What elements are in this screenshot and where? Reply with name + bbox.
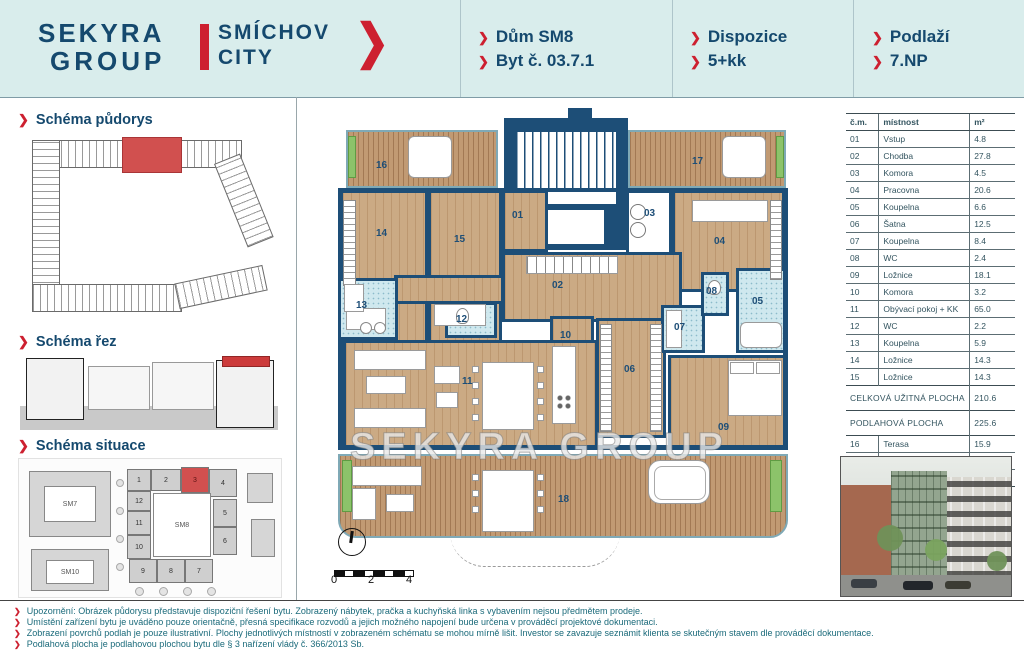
room-label: 01 bbox=[512, 210, 523, 221]
chair bbox=[472, 414, 479, 421]
side-table bbox=[436, 392, 458, 408]
situace-cell: 2 bbox=[151, 469, 181, 491]
room-label: 14 bbox=[376, 228, 387, 239]
room-label: 10 bbox=[560, 330, 571, 341]
dispozice-label: Dispozice bbox=[708, 25, 787, 48]
building-ring-corner bbox=[174, 265, 267, 309]
podlazi-label: Podlaží bbox=[890, 25, 950, 48]
block-misc bbox=[247, 473, 273, 503]
chair bbox=[472, 490, 479, 497]
chair bbox=[537, 382, 544, 389]
podlazi-value: 7.NP bbox=[890, 49, 928, 72]
table-row: 13Koupelna5.9 bbox=[846, 335, 1015, 352]
house-label: Dům SM8 bbox=[496, 25, 573, 48]
logo-chevron-icon: ❯ bbox=[355, 14, 389, 70]
building-green bbox=[891, 471, 947, 581]
room-label: 16 bbox=[376, 160, 387, 171]
north-needle bbox=[349, 531, 354, 543]
chevron-icon: ❯ bbox=[478, 50, 489, 73]
room-label: 02 bbox=[552, 280, 563, 291]
table-row: 14Ložnice14.3 bbox=[846, 352, 1015, 369]
table-row: 07Koupelna8.4 bbox=[846, 233, 1015, 250]
room-label: 04 bbox=[714, 236, 725, 247]
chevron-icon: ❯ bbox=[14, 639, 21, 650]
elevator bbox=[542, 210, 604, 244]
room-label: 11 bbox=[462, 376, 473, 387]
rooms-table-body: 01Vstup4.802Chodba27.803Komora4.504Praco… bbox=[846, 131, 1015, 487]
table-row: 15Ložnice14.3 bbox=[846, 369, 1015, 386]
room-label: 15 bbox=[454, 234, 465, 245]
chevron-icon: ❯ bbox=[18, 438, 29, 454]
terrace-table bbox=[408, 136, 452, 178]
sidebar-divider bbox=[296, 97, 297, 600]
block-misc bbox=[251, 519, 275, 557]
schema-rez-drawing bbox=[18, 354, 280, 430]
col-cm: č.m. bbox=[846, 114, 879, 131]
table-row: 16Terasa15.9 bbox=[846, 436, 1015, 453]
summary-row: CELKOVÁ UŽITNÁ PLOCHA210.6 bbox=[846, 386, 1015, 411]
room-label: 12 bbox=[456, 314, 467, 325]
chair bbox=[472, 506, 479, 513]
sofa bbox=[354, 350, 426, 370]
corridor-arm bbox=[394, 275, 504, 304]
chair bbox=[472, 474, 479, 481]
outdoor-sofa bbox=[352, 488, 376, 520]
table-row: 01Vstup4.8 bbox=[846, 131, 1015, 148]
layout-info-block: ❯Dispozice ❯5+kk bbox=[690, 25, 787, 73]
terrace-table bbox=[722, 136, 766, 178]
chair bbox=[537, 490, 544, 497]
page: SEKYRA GROUP SMÍCHOV CITY ❯ ❯Dům SM8 ❯By… bbox=[0, 0, 1024, 652]
tree-icon bbox=[116, 535, 124, 543]
note-line: Podlahová plocha je podlahovou plochou b… bbox=[27, 639, 364, 650]
situace-cell: 1 bbox=[127, 469, 151, 491]
table-row: 09Ložnice18.1 bbox=[846, 267, 1015, 284]
situace-cell: 10 bbox=[127, 535, 151, 559]
header-divider bbox=[853, 0, 854, 97]
table-row: 05Koupelna6.6 bbox=[846, 199, 1015, 216]
section-building-mid2 bbox=[152, 362, 214, 410]
outdoor-sofa bbox=[352, 466, 422, 486]
room-label: 17 bbox=[692, 156, 703, 167]
schema-pudorys-drawing bbox=[18, 134, 280, 330]
scale-0: 0 bbox=[331, 574, 337, 586]
chevron-icon: ❯ bbox=[18, 334, 29, 350]
note-line: Upozornění: Obrázek půdorysu představuje… bbox=[27, 606, 643, 617]
summary-row: PODLAHOVÁ PLOCHA225.6 bbox=[846, 411, 1015, 436]
logo-sekyra: SEKYRA bbox=[38, 20, 164, 46]
table-row: 08WC2.4 bbox=[846, 250, 1015, 267]
dashed-arc bbox=[450, 532, 620, 567]
north-arrow-icon bbox=[338, 528, 366, 556]
dryer-icon bbox=[630, 222, 646, 238]
chair bbox=[472, 382, 479, 389]
sink-icon bbox=[374, 322, 386, 334]
scale-4: 4 bbox=[406, 574, 412, 586]
block-sm8-label: SM8 bbox=[153, 493, 211, 557]
building-rendering bbox=[840, 456, 1012, 597]
situace-cell: 12 bbox=[127, 491, 151, 511]
tree-icon bbox=[925, 539, 947, 561]
col-m2: m² bbox=[970, 114, 1015, 131]
highlight-unit-red bbox=[122, 137, 182, 173]
header: SEKYRA GROUP SMÍCHOV CITY ❯ ❯Dům SM8 ❯By… bbox=[0, 0, 1024, 98]
block-sm7: SM7 bbox=[29, 471, 111, 537]
building-ring-bottom bbox=[32, 284, 182, 312]
car bbox=[851, 579, 877, 588]
car bbox=[903, 581, 933, 590]
table-row: 11Obývací pokoj + KK65.0 bbox=[846, 301, 1015, 318]
room-label: 08 bbox=[706, 286, 717, 297]
table-header-row: č.m. místnost m² bbox=[846, 114, 1015, 131]
section-building-mid1 bbox=[88, 366, 150, 410]
sofa bbox=[692, 200, 768, 222]
chair bbox=[537, 506, 544, 513]
section-building-left bbox=[26, 358, 84, 420]
situace-cell-highlight: 3 bbox=[181, 467, 209, 493]
chevron-icon: ❯ bbox=[872, 26, 883, 49]
situace-cell: 4 bbox=[209, 469, 237, 497]
footer-notes: ❯Upozornění: Obrázek půdorysu představuj… bbox=[0, 600, 1024, 652]
situace-cell: 5 bbox=[213, 499, 237, 527]
stairs bbox=[516, 132, 616, 188]
header-divider bbox=[672, 0, 673, 97]
room-label: 06 bbox=[624, 364, 635, 375]
pillow bbox=[756, 362, 780, 374]
table-row: 06Šatna12.5 bbox=[846, 216, 1015, 233]
tree-icon bbox=[183, 587, 192, 596]
dispozice-value: 5+kk bbox=[708, 49, 746, 72]
highlight-floor-red bbox=[222, 356, 270, 367]
chevron-icon: ❯ bbox=[690, 26, 701, 49]
table-row: 04Pracovna20.6 bbox=[846, 182, 1015, 199]
note-line: Umístění zařízení bytu je uváděno pouze … bbox=[27, 617, 658, 628]
chair bbox=[537, 366, 544, 373]
chair bbox=[472, 398, 479, 405]
outdoor-dining-table bbox=[482, 470, 534, 532]
pillow bbox=[730, 362, 754, 374]
section-title-text: Schéma situace bbox=[36, 438, 146, 454]
kitchen-island bbox=[552, 346, 576, 424]
room-label: 07 bbox=[674, 322, 685, 333]
chair bbox=[537, 474, 544, 481]
chevron-icon: ❯ bbox=[872, 50, 883, 73]
wardrobe bbox=[770, 200, 782, 280]
table-row: 03Komora4.5 bbox=[846, 165, 1015, 182]
situace-cell: 9 bbox=[129, 559, 157, 583]
hob-icon bbox=[556, 394, 572, 410]
room-01-vstup bbox=[502, 190, 548, 252]
block-sm7-label: SM7 bbox=[44, 486, 96, 522]
section-title-pudorys: ❯ Schéma půdorys bbox=[18, 112, 153, 128]
block-sm10: SM10 bbox=[31, 549, 109, 591]
situace-cell: 8 bbox=[157, 559, 185, 583]
side-table bbox=[434, 366, 460, 384]
room-label: 03 bbox=[644, 208, 655, 219]
rooms-table: č.m. místnost m² 01Vstup4.802Chodba27.80… bbox=[846, 113, 1015, 487]
table-row: 10Komora3.2 bbox=[846, 284, 1015, 301]
section-title-text: Schéma půdorys bbox=[36, 112, 153, 128]
logo-city: CITY bbox=[218, 47, 274, 68]
section-building-right bbox=[216, 360, 274, 428]
tree-icon bbox=[116, 507, 124, 515]
logo-smichov: SMÍCHOV bbox=[218, 22, 330, 43]
room-label: 05 bbox=[752, 296, 763, 307]
room-label: 18 bbox=[558, 494, 569, 505]
note-line: Zobrazení povrchů podlah je pouze ilustr… bbox=[27, 628, 874, 639]
chevron-icon: ❯ bbox=[18, 112, 29, 128]
chair bbox=[537, 398, 544, 405]
col-mistnost: místnost bbox=[879, 114, 970, 131]
situace-cell: 7 bbox=[185, 559, 213, 583]
logo-divider-bar bbox=[200, 24, 209, 70]
situace-cell: 6 bbox=[213, 527, 237, 555]
tree-icon bbox=[207, 587, 216, 596]
tree-icon bbox=[116, 479, 124, 487]
tree-icon bbox=[877, 525, 903, 551]
unit-info-block: ❯Dům SM8 ❯Byt č. 03.7.1 bbox=[478, 25, 594, 73]
planter bbox=[776, 136, 784, 178]
unit-label: Byt č. 03.7.1 bbox=[496, 49, 594, 72]
floor-info-block: ❯Podlaží ❯7.NP bbox=[872, 25, 949, 73]
room-label: 13 bbox=[356, 300, 367, 311]
tree-icon bbox=[135, 587, 144, 596]
scale-2: 2 bbox=[368, 574, 374, 586]
section-title-situace: ❯ Schéma situace bbox=[18, 438, 146, 454]
chair bbox=[472, 366, 479, 373]
bathtub bbox=[740, 322, 782, 348]
wall-stub bbox=[568, 108, 592, 120]
chevron-icon: ❯ bbox=[690, 50, 701, 73]
section-title-rez: ❯ Schéma řez bbox=[18, 334, 117, 350]
table-row: 12WC2.2 bbox=[846, 318, 1015, 335]
wardrobe bbox=[343, 200, 356, 286]
closet-shelving bbox=[600, 324, 612, 432]
tree-icon bbox=[987, 551, 1007, 571]
chevron-icon: ❯ bbox=[14, 606, 21, 617]
chevron-icon: ❯ bbox=[14, 628, 21, 639]
built-in-cabinet bbox=[526, 256, 618, 274]
chair bbox=[537, 414, 544, 421]
tree-icon bbox=[116, 563, 124, 571]
sink-icon bbox=[360, 322, 372, 334]
planter bbox=[770, 460, 782, 512]
planter bbox=[348, 136, 356, 178]
sofa bbox=[354, 408, 426, 428]
table-row: 02Chodba27.8 bbox=[846, 148, 1015, 165]
floor-plan: 16 17 bbox=[330, 108, 810, 608]
chevron-icon: ❯ bbox=[14, 617, 21, 628]
car bbox=[945, 581, 971, 589]
closet-shelving bbox=[650, 324, 662, 432]
watermark: SEKYRA GROUP bbox=[350, 426, 729, 469]
dining-table bbox=[482, 362, 534, 430]
tree-icon bbox=[159, 587, 168, 596]
chevron-icon: ❯ bbox=[478, 26, 489, 49]
coffee-table bbox=[366, 376, 406, 394]
block-sm10-label: SM10 bbox=[46, 560, 94, 584]
outdoor-table bbox=[386, 494, 414, 512]
schema-situace-map: SM7 SM10 1 2 3 4 5 6 7 8 9 10 11 12 SM8 bbox=[18, 458, 282, 598]
hot-tub-inner bbox=[654, 466, 706, 500]
situace-cell: 11 bbox=[127, 511, 151, 535]
section-title-text: Schéma řez bbox=[36, 334, 117, 350]
header-divider bbox=[460, 0, 461, 97]
building-ring-right bbox=[214, 154, 274, 248]
logo-group: GROUP bbox=[50, 48, 165, 74]
